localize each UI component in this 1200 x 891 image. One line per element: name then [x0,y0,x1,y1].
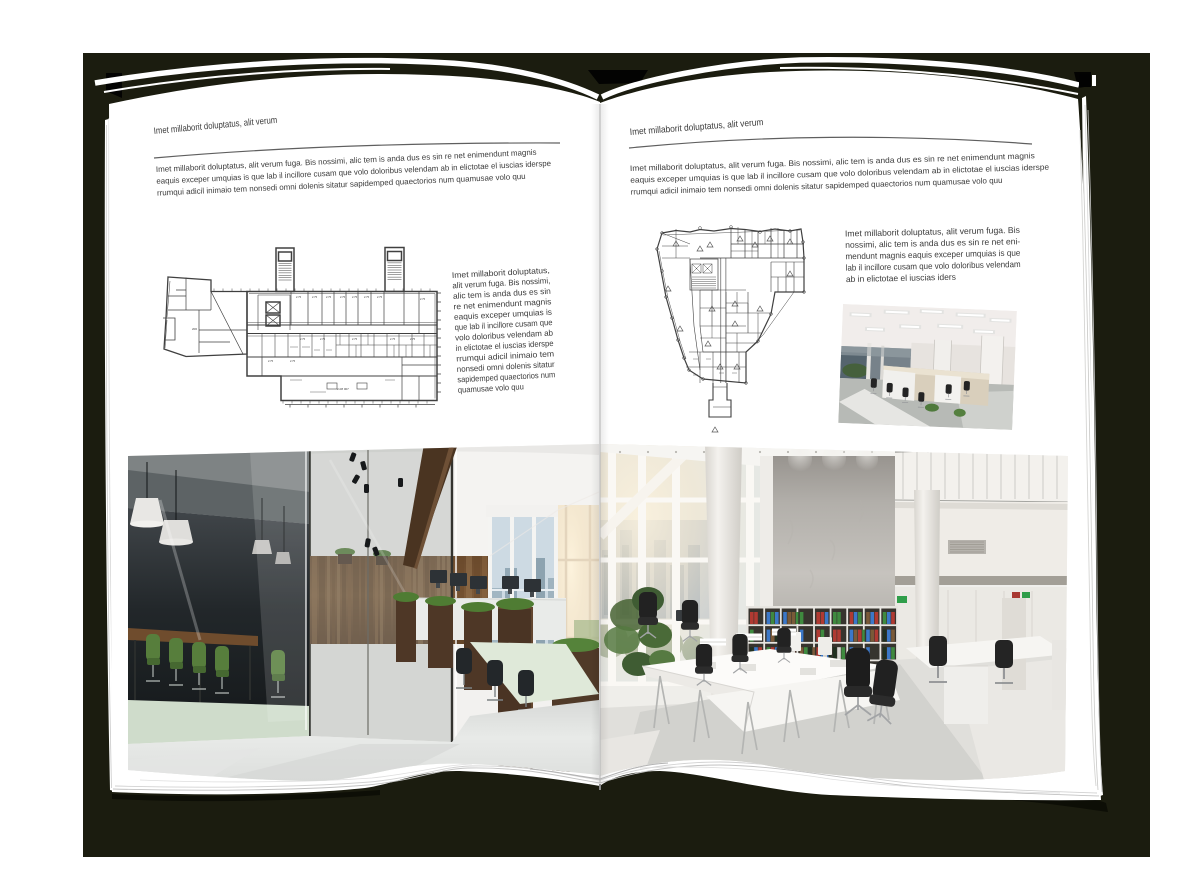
svg-text:2.75: 2.75 [377,295,383,299]
svg-text:2.75: 2.75 [326,295,332,299]
svg-text:2.75: 2.75 [290,359,296,363]
svg-text:2.75: 2.75 [410,337,416,341]
svg-text:2.75: 2.75 [420,297,426,301]
svg-text:2.75: 2.75 [352,295,358,299]
svg-text:2.75: 2.75 [364,295,370,299]
svg-text:2.75: 2.75 [268,359,274,363]
svg-text:2.75: 2.75 [312,295,318,299]
svg-text:2.75: 2.75 [300,337,306,341]
svg-text:2-08 007: 2-08 007 [337,387,349,391]
svg-text:2.75: 2.75 [352,337,358,341]
svg-text:2.75: 2.75 [320,337,326,341]
svg-text:2.75: 2.75 [340,295,346,299]
svg-text:2.75: 2.75 [390,337,396,341]
svg-text:2.75: 2.75 [296,295,302,299]
svg-text:206: 206 [192,327,197,331]
